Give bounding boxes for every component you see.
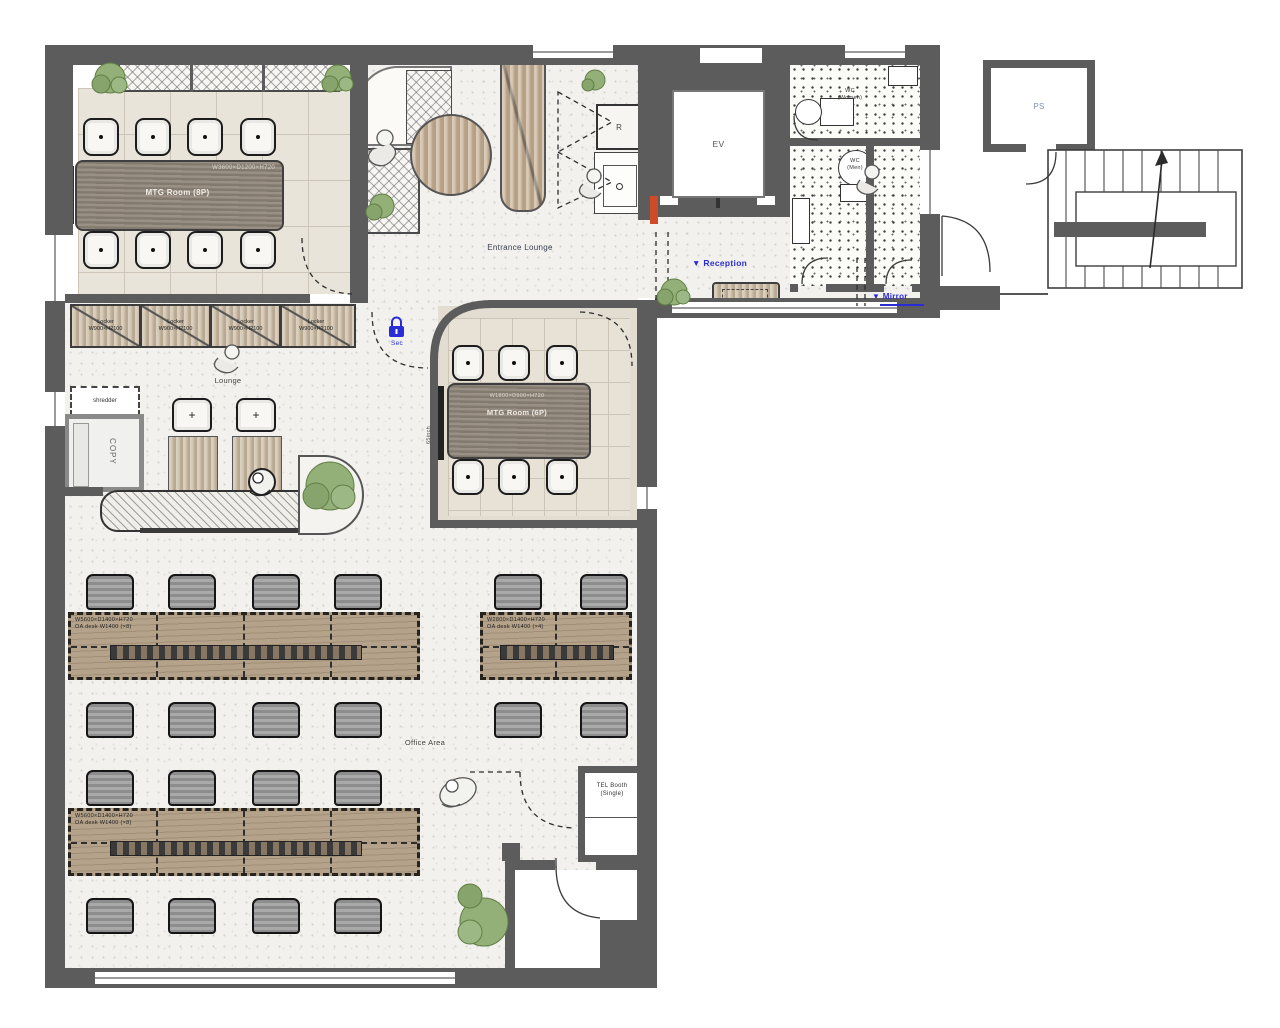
- mtg6-corner-wall: [434, 304, 492, 360]
- reception-annotation: ▼ Reception: [692, 258, 747, 268]
- plan-linework: [0, 0, 1280, 1028]
- mtg6-dim-label: W1800×D900×H720: [447, 393, 587, 399]
- mirror-marker: ▼: [872, 292, 880, 301]
- floor-plan: LockerW900×H2100 LockerW900×H2100 Locker…: [0, 0, 1280, 1028]
- person-figure: [368, 130, 395, 166]
- person-figure: [214, 345, 239, 373]
- mtg8-room-label: MTG Room (8P): [75, 188, 280, 197]
- mtg6-room-label: MTG Room (6P): [447, 408, 587, 417]
- wc-men-name: WC: [824, 158, 886, 165]
- mirror-line: [880, 304, 924, 306]
- entrance-lounge-label: Entrance Lounge: [455, 243, 585, 252]
- plant: [657, 279, 690, 305]
- person-figure: [435, 772, 480, 812]
- stair-landing: [1054, 222, 1206, 237]
- mtg8-dim-label: W3600×D1200×H720: [140, 165, 275, 171]
- plant: [303, 462, 355, 510]
- mtg6-tv-label: 65inch: [426, 394, 432, 444]
- lounge-label: Lounge: [198, 376, 258, 385]
- mirror-label: Mirror: [883, 292, 908, 301]
- wc-men-sub: (Men): [824, 165, 886, 172]
- reception-marker: ▼: [692, 258, 701, 268]
- reception-label: Reception: [703, 258, 747, 268]
- plant: [582, 70, 605, 91]
- security-lock-icon: [389, 318, 404, 338]
- security-label: Sec: [385, 340, 409, 347]
- door-swings: [556, 116, 1056, 918]
- wc-women-label: WC(Women): [818, 88, 882, 101]
- staircase: [1000, 150, 1242, 294]
- plant: [92, 63, 127, 93]
- office-area-label: Office Area: [385, 738, 465, 747]
- mirror-annotation: ▼ Mirror: [872, 292, 908, 301]
- wc-men-label: WC(Men): [824, 158, 886, 171]
- plant: [366, 194, 394, 220]
- wc-women-sub: (Women): [818, 95, 882, 102]
- wc-women-name: WC: [818, 88, 882, 95]
- person-figure: [249, 469, 275, 496]
- person-figure: [579, 169, 601, 198]
- plant: [458, 884, 508, 946]
- plant: [322, 65, 353, 92]
